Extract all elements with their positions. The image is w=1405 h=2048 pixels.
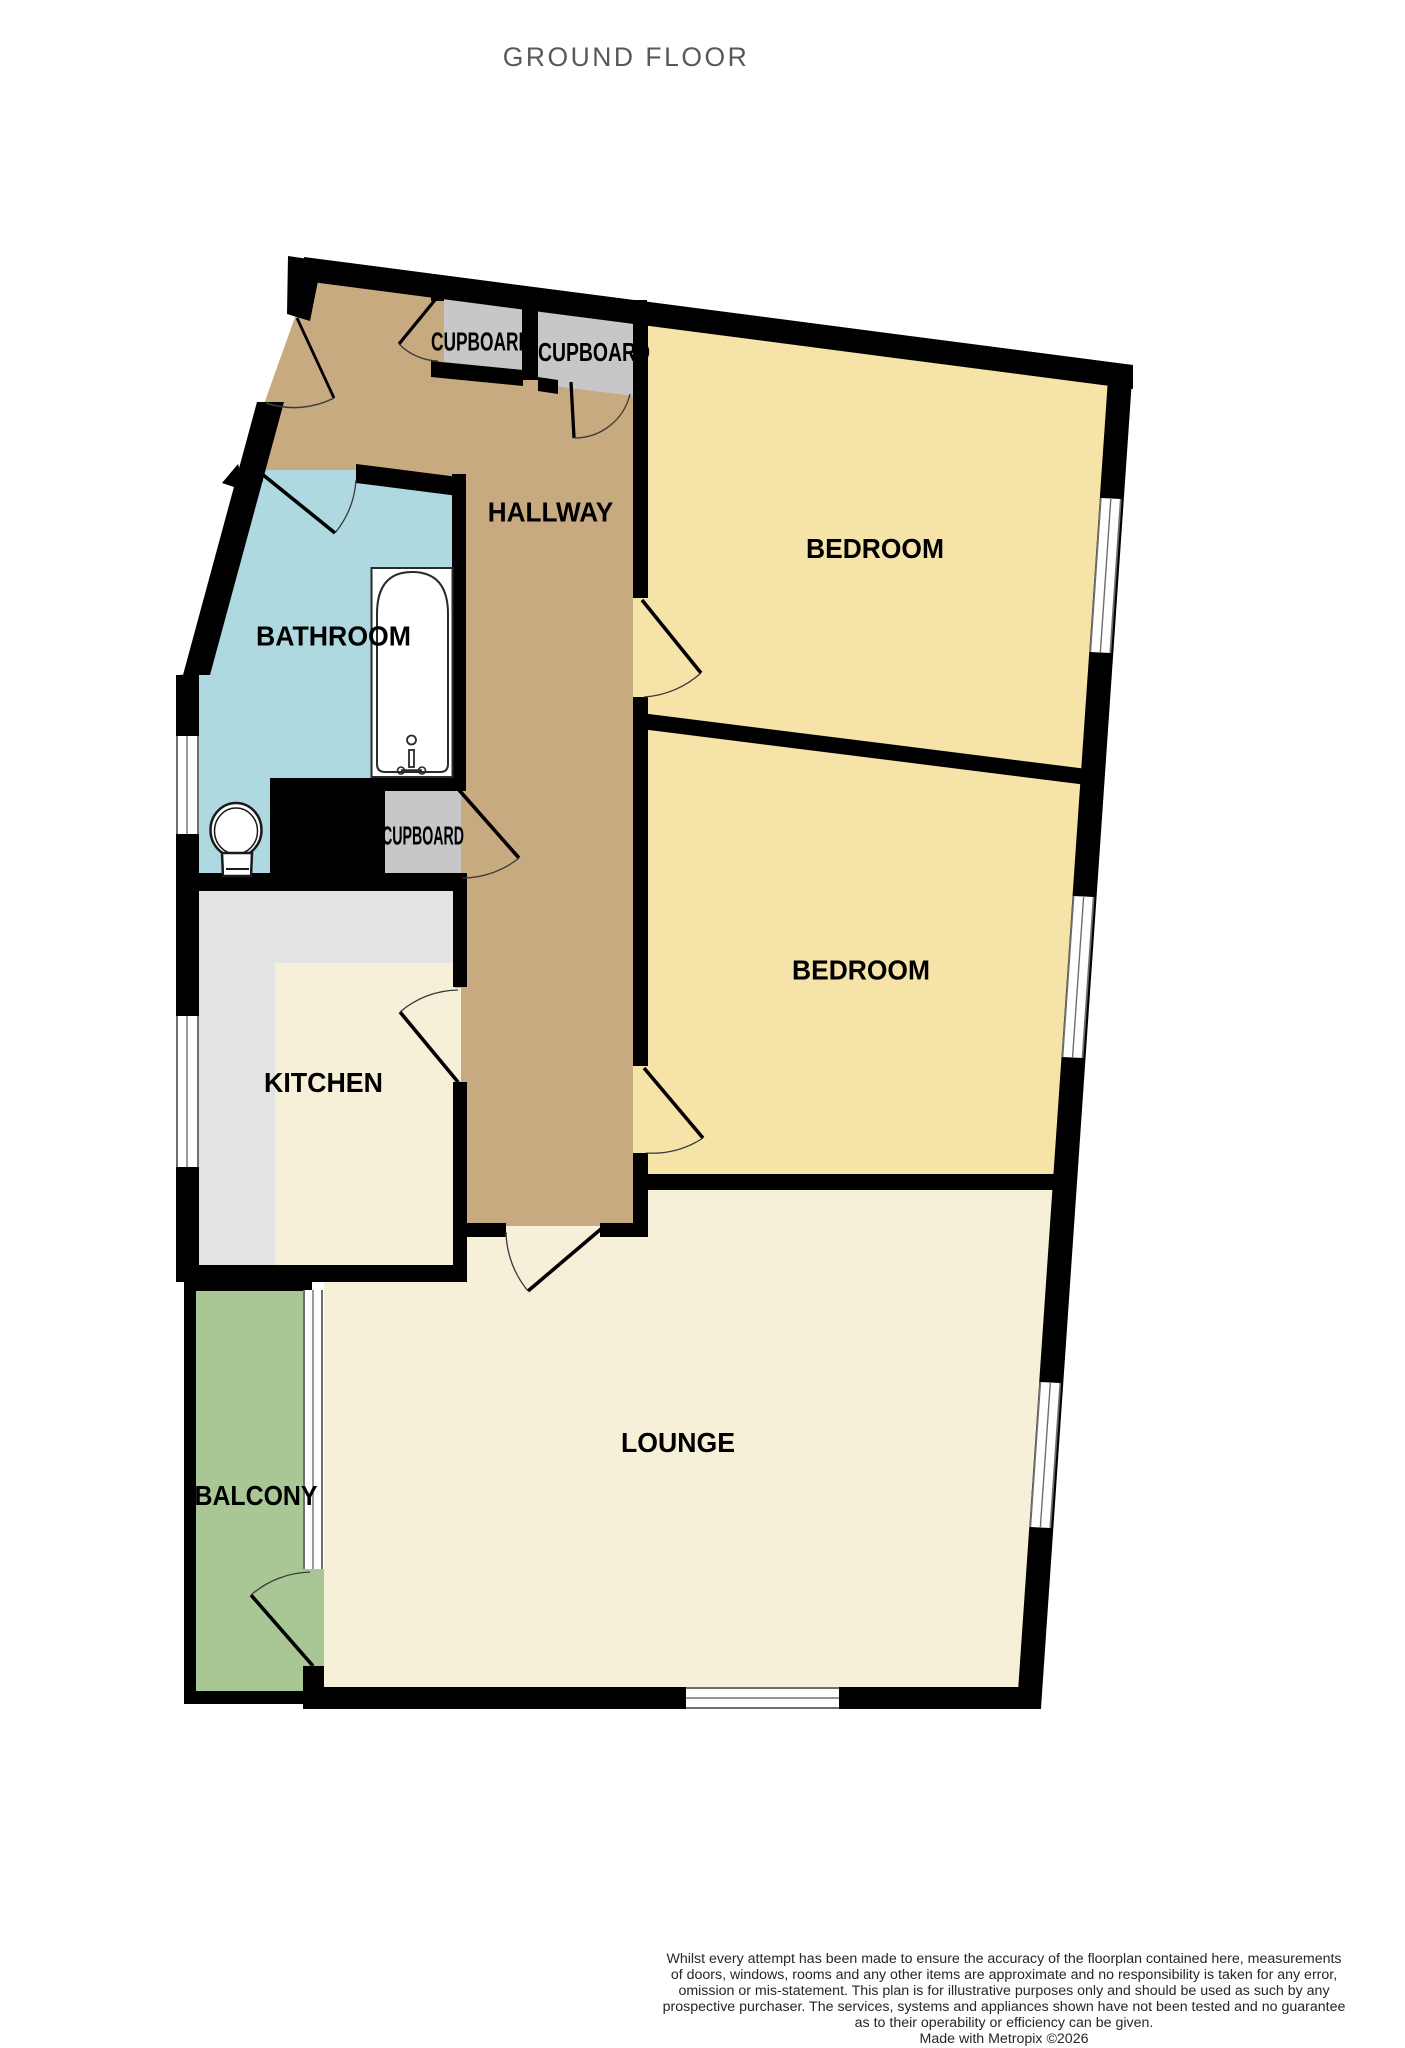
svg-text:BEDROOM: BEDROOM [806,533,944,564]
svg-text:BEDROOM: BEDROOM [792,955,930,986]
svg-text:LOUNGE: LOUNGE [621,1427,735,1458]
svg-text:BALCONY: BALCONY [195,1480,318,1511]
svg-text:BATHROOM: BATHROOM [256,621,411,652]
svg-text:CUPBOARD: CUPBOARD [538,339,650,367]
svg-text:KITCHEN: KITCHEN [264,1067,383,1098]
svg-text:HALLWAY: HALLWAY [488,497,614,528]
svg-text:CUPBOARD: CUPBOARD [382,823,464,851]
svg-text:GROUND FLOOR: GROUND FLOOR [503,42,749,72]
svg-text:CUPBOARD: CUPBOARD [431,329,531,357]
